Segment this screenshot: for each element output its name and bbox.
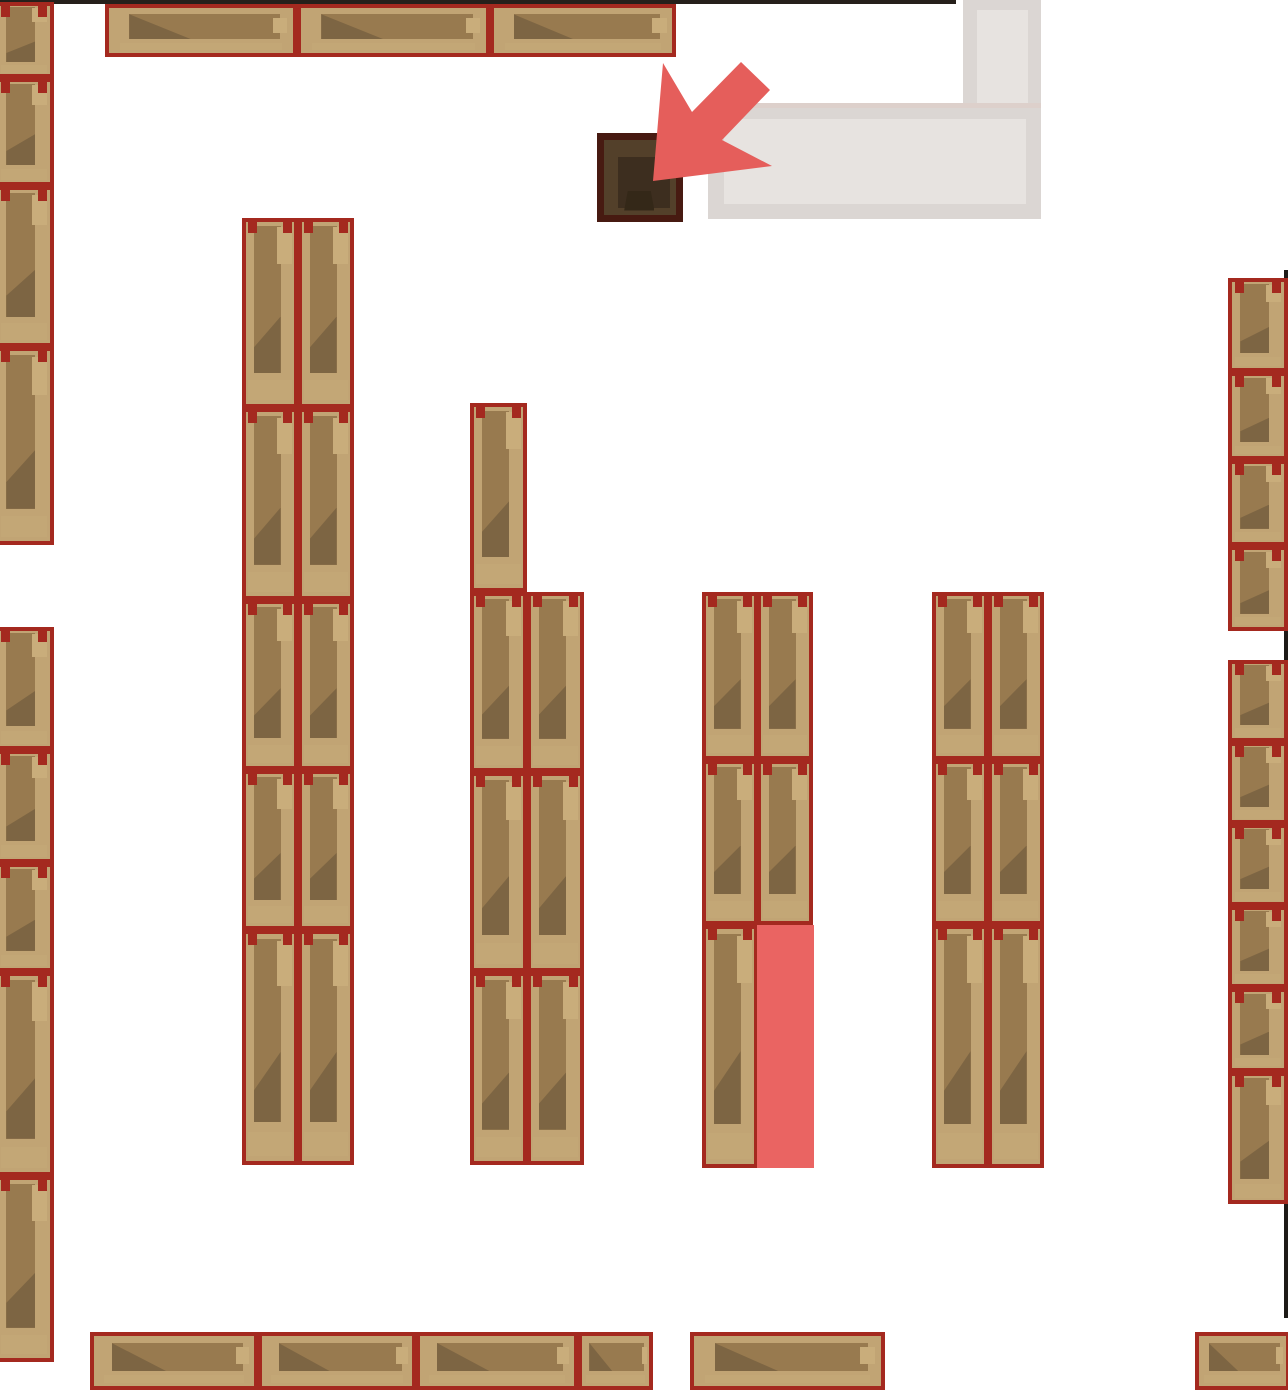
store-layout-map	[0, 0, 1288, 1392]
tab-decoration	[1235, 464, 1244, 475]
tab-decoration	[1235, 664, 1244, 675]
notch-decoration	[277, 941, 291, 986]
shelf-unit[interactable]	[1228, 460, 1288, 546]
tab-decoration	[1235, 992, 1244, 1003]
tab-decoration	[512, 776, 521, 787]
lip-decoration	[1235, 446, 1282, 455]
shelf-unit[interactable]	[1228, 278, 1288, 372]
shelf-unit[interactable]	[1228, 988, 1288, 1072]
shelf-unit[interactable]	[0, 186, 54, 347]
shelf-unit[interactable]	[527, 772, 584, 972]
shelf-unit[interactable]	[298, 930, 354, 1165]
shelf-unit[interactable]	[988, 760, 1044, 925]
lip-decoration	[1, 169, 48, 180]
tab-decoration	[798, 764, 807, 775]
tab-decoration	[1272, 910, 1281, 921]
tab-decoration	[248, 934, 257, 945]
lip-decoration	[304, 572, 347, 592]
tab-decoration	[1272, 828, 1281, 839]
shelf-unit[interactable]	[757, 760, 813, 925]
shelf-unit[interactable]	[242, 930, 298, 1165]
notch-decoration	[333, 418, 347, 455]
lip-decoration	[938, 735, 981, 753]
shelf-unit[interactable]	[298, 770, 354, 930]
tab-decoration	[938, 764, 947, 775]
tab-decoration	[569, 976, 578, 987]
lip-decoration	[533, 943, 577, 964]
lip-decoration	[304, 745, 347, 763]
tab-decoration	[476, 776, 485, 787]
tab-decoration	[994, 764, 1003, 775]
notch-decoration	[1276, 1347, 1283, 1364]
lip-decoration	[1235, 617, 1282, 625]
lip-decoration	[1204, 1375, 1281, 1383]
shelf-unit[interactable]	[0, 347, 54, 545]
highlighted-slot[interactable]	[757, 925, 814, 1168]
lip-decoration	[476, 746, 520, 765]
lip-decoration	[1235, 357, 1282, 366]
shelf-unit[interactable]	[0, 1176, 54, 1362]
tab-decoration	[743, 929, 752, 940]
lip-decoration	[938, 1133, 981, 1159]
tab-decoration	[38, 82, 47, 93]
notch-decoration	[32, 357, 48, 395]
lip-decoration	[271, 1375, 403, 1383]
tab-decoration	[1029, 764, 1038, 775]
tab-decoration	[1235, 746, 1244, 757]
counter-area-horizontal-inner	[724, 119, 1026, 204]
tab-decoration	[743, 596, 752, 607]
tab-decoration	[339, 222, 348, 233]
tab-decoration	[1235, 376, 1244, 387]
tab-decoration	[1, 190, 10, 201]
tab-decoration	[283, 222, 292, 233]
tab-decoration	[533, 596, 542, 607]
shelf-unit[interactable]	[1195, 1332, 1288, 1390]
tab-decoration	[1029, 596, 1038, 607]
lip-decoration	[1235, 892, 1282, 900]
tab-decoration	[1272, 282, 1281, 293]
shelf-unit[interactable]	[242, 600, 298, 770]
tab-decoration	[708, 764, 717, 775]
tab-decoration	[304, 222, 313, 233]
lip-decoration	[104, 1375, 245, 1383]
tab-decoration	[1272, 464, 1281, 475]
tab-decoration	[1272, 746, 1281, 757]
shelf-unit[interactable]	[932, 925, 988, 1168]
lip-decoration	[1, 65, 48, 72]
lip-decoration	[304, 1132, 347, 1157]
lip-decoration	[708, 735, 751, 753]
tab-decoration	[283, 412, 292, 423]
shelf-unit[interactable]	[242, 408, 298, 600]
tab-decoration	[1, 754, 10, 765]
tab-decoration	[476, 407, 485, 418]
shelf-unit[interactable]	[258, 1332, 416, 1390]
lip-decoration	[248, 380, 291, 400]
tab-decoration	[304, 604, 313, 615]
shelf-unit[interactable]	[297, 4, 490, 57]
shelf-unit[interactable]	[932, 592, 988, 760]
tab-decoration	[994, 929, 1003, 940]
lip-decoration	[505, 43, 662, 50]
tab-decoration	[1272, 664, 1281, 675]
lip-decoration	[763, 735, 806, 753]
tab-decoration	[569, 776, 578, 787]
shelf-unit[interactable]	[0, 2, 54, 78]
tab-decoration	[708, 596, 717, 607]
notch-decoration	[563, 982, 578, 1019]
notch-decoration	[333, 941, 347, 986]
notch-decoration	[32, 982, 48, 1021]
tab-decoration	[798, 596, 807, 607]
notch-decoration	[642, 1347, 647, 1364]
lip-decoration	[1, 516, 48, 537]
tab-decoration	[304, 934, 313, 945]
tab-decoration	[1, 82, 10, 93]
shelf-unit[interactable]	[0, 627, 54, 750]
notch-decoration	[236, 1347, 249, 1364]
shelf-unit[interactable]	[702, 925, 758, 1168]
shelf-unit[interactable]	[1228, 1072, 1288, 1204]
lip-decoration	[429, 1375, 565, 1383]
shelf-unit[interactable]	[416, 1332, 578, 1390]
tab-decoration	[938, 596, 947, 607]
tab-decoration	[743, 764, 752, 775]
tab-decoration	[533, 776, 542, 787]
lip-decoration	[1, 845, 48, 857]
shelf-unit[interactable]	[527, 592, 584, 772]
shelf-unit[interactable]	[90, 1332, 258, 1390]
lip-decoration	[533, 1137, 577, 1157]
tab-decoration	[248, 604, 257, 615]
tab-decoration	[1, 6, 10, 17]
tab-decoration	[1, 1180, 10, 1191]
shelf-unit[interactable]	[757, 592, 813, 760]
lip-decoration	[994, 901, 1037, 918]
tab-decoration	[973, 929, 982, 940]
shelf-unit[interactable]	[0, 863, 54, 972]
lip-decoration	[994, 1133, 1037, 1159]
shelf-unit[interactable]	[298, 600, 354, 770]
lip-decoration	[1235, 810, 1282, 818]
shelf-unit[interactable]	[298, 408, 354, 600]
notch-decoration	[557, 1347, 569, 1364]
notch-decoration	[967, 936, 981, 983]
notch-decoration	[652, 18, 666, 33]
shelf-unit[interactable]	[702, 760, 758, 925]
lip-decoration	[476, 1137, 520, 1157]
shelf-unit[interactable]	[1228, 660, 1288, 742]
lip-decoration	[1235, 1184, 1282, 1198]
tab-decoration	[339, 412, 348, 423]
tab-decoration	[1272, 1076, 1281, 1087]
shelf-unit[interactable]	[242, 218, 298, 408]
notch-decoration	[506, 982, 521, 1019]
shelf-unit[interactable]	[105, 4, 297, 57]
lip-decoration	[248, 572, 291, 592]
tab-decoration	[708, 929, 717, 940]
tab-decoration	[248, 222, 257, 233]
tab-decoration	[1235, 550, 1244, 561]
tab-decoration	[938, 929, 947, 940]
tab-decoration	[283, 774, 292, 785]
tab-decoration	[38, 754, 47, 765]
notch-decoration	[273, 18, 288, 33]
tab-decoration	[283, 604, 292, 615]
tab-decoration	[533, 976, 542, 987]
lip-decoration	[586, 1375, 645, 1383]
desk-chair	[624, 191, 654, 211]
tab-decoration	[1272, 992, 1281, 1003]
shelf-unit[interactable]	[470, 403, 527, 592]
lip-decoration	[1235, 1058, 1282, 1066]
tab-decoration	[38, 976, 47, 987]
lip-decoration	[1, 955, 48, 966]
tab-decoration	[476, 976, 485, 987]
shelf-unit[interactable]	[527, 972, 584, 1165]
notch-decoration	[563, 782, 578, 820]
tab-decoration	[973, 764, 982, 775]
notch-decoration	[1023, 936, 1037, 983]
notch-decoration	[506, 782, 521, 820]
lip-decoration	[994, 735, 1037, 753]
shelf-unit[interactable]	[470, 972, 527, 1165]
tab-decoration	[569, 596, 578, 607]
tab-decoration	[38, 631, 47, 642]
lip-decoration	[708, 901, 751, 918]
lip-decoration	[304, 906, 347, 923]
shelf-unit[interactable]	[470, 592, 527, 772]
lip-decoration	[1, 1147, 48, 1169]
tab-decoration	[339, 934, 348, 945]
tab-decoration	[1, 351, 10, 362]
lip-decoration	[938, 901, 981, 918]
shelf-unit[interactable]	[1228, 906, 1288, 988]
lip-decoration	[1235, 532, 1282, 541]
shelf-unit[interactable]	[988, 925, 1044, 1168]
tab-decoration	[1029, 929, 1038, 940]
shelf-unit[interactable]	[988, 592, 1044, 760]
shelf-unit[interactable]	[298, 218, 354, 408]
checkout-desk[interactable]	[597, 133, 683, 222]
tab-decoration	[1235, 282, 1244, 293]
lip-decoration	[1, 1335, 48, 1355]
lip-decoration	[533, 746, 577, 765]
notch-decoration	[466, 18, 481, 33]
tab-decoration	[248, 774, 257, 785]
lip-decoration	[708, 1133, 751, 1159]
tab-decoration	[512, 596, 521, 607]
lip-decoration	[248, 906, 291, 923]
tab-decoration	[1235, 828, 1244, 839]
tab-decoration	[1, 631, 10, 642]
notch-decoration	[737, 936, 751, 983]
shelf-unit[interactable]	[470, 772, 527, 972]
shelf-unit[interactable]	[932, 760, 988, 925]
shelf-unit[interactable]	[702, 592, 758, 760]
shelf-unit[interactable]	[490, 4, 676, 57]
shelf-unit[interactable]	[1228, 742, 1288, 824]
notch-decoration	[277, 418, 291, 455]
tab-decoration	[38, 1180, 47, 1191]
tab-decoration	[1, 976, 10, 987]
notch-decoration	[396, 1347, 408, 1364]
lip-decoration	[1, 323, 48, 340]
shelf-unit[interactable]	[1228, 546, 1288, 631]
tab-decoration	[339, 604, 348, 615]
lip-decoration	[1235, 728, 1282, 736]
lip-decoration	[476, 943, 520, 964]
tab-decoration	[38, 351, 47, 362]
lip-decoration	[120, 43, 282, 50]
shelf-unit[interactable]	[242, 770, 298, 930]
lip-decoration	[705, 1375, 870, 1383]
tab-decoration	[248, 412, 257, 423]
shelf-unit[interactable]	[1228, 824, 1288, 906]
tab-decoration	[1235, 1076, 1244, 1087]
shelf-unit[interactable]	[0, 78, 54, 186]
tab-decoration	[38, 190, 47, 201]
tab-decoration	[512, 976, 521, 987]
lip-decoration	[763, 901, 806, 918]
tab-decoration	[973, 596, 982, 607]
tab-decoration	[1272, 376, 1281, 387]
shelf-unit[interactable]	[1228, 372, 1288, 460]
tab-decoration	[512, 407, 521, 418]
tab-decoration	[763, 764, 772, 775]
tab-decoration	[1, 867, 10, 878]
lip-decoration	[248, 1132, 291, 1157]
shelf-unit[interactable]	[578, 1332, 653, 1390]
tab-decoration	[283, 934, 292, 945]
lip-decoration	[304, 380, 347, 400]
tab-decoration	[304, 774, 313, 785]
lip-decoration	[476, 564, 520, 584]
lip-decoration	[1235, 974, 1282, 982]
notch-decoration	[860, 1347, 875, 1364]
tab-decoration	[1235, 910, 1244, 921]
tab-decoration	[38, 867, 47, 878]
tab-decoration	[476, 596, 485, 607]
tab-decoration	[1272, 550, 1281, 561]
tab-decoration	[994, 596, 1003, 607]
tab-decoration	[763, 596, 772, 607]
shelf-unit[interactable]	[0, 972, 54, 1176]
lip-decoration	[312, 43, 475, 50]
shelf-unit[interactable]	[690, 1332, 885, 1390]
tab-decoration	[339, 774, 348, 785]
lip-decoration	[248, 745, 291, 763]
tab-decoration	[38, 6, 47, 17]
shelf-unit[interactable]	[0, 750, 54, 863]
tab-decoration	[304, 412, 313, 423]
lip-decoration	[1, 731, 48, 744]
